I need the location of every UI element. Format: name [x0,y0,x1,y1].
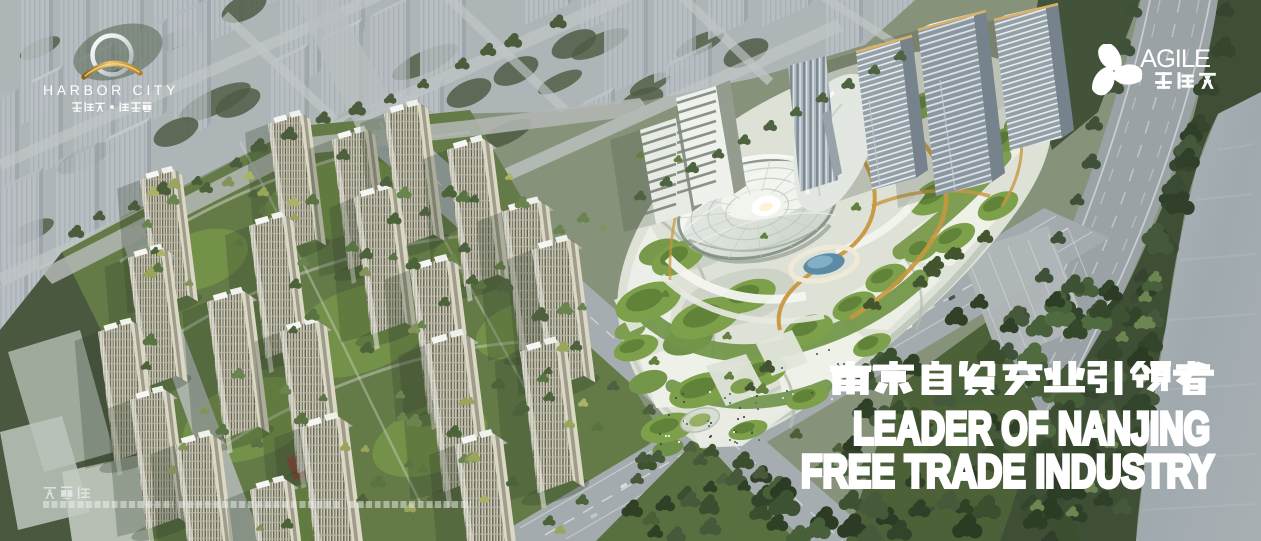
svg-text:FREE TRADE INDUSTRY: FREE TRADE INDUSTRY [801,445,1214,497]
